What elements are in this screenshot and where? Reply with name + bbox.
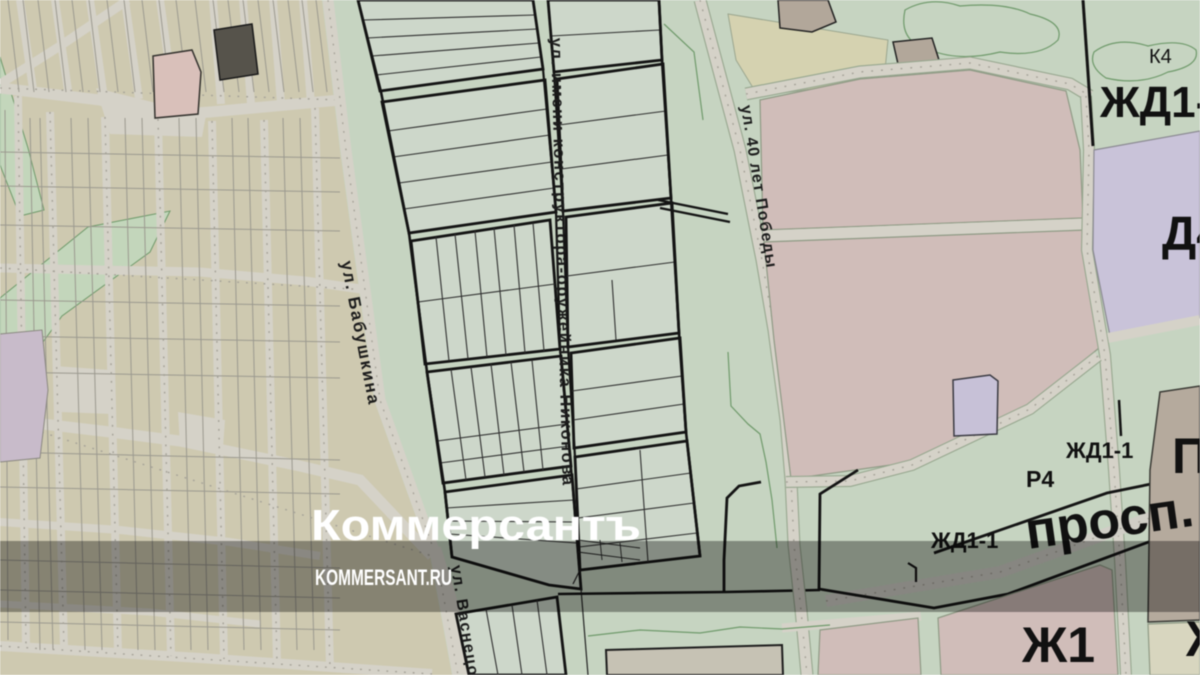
- svg-text:Ж: Ж: [1185, 611, 1200, 667]
- svg-text:Коммерсантъ: Коммерсантъ: [311, 501, 641, 550]
- svg-text:ЖД1-1: ЖД1-1: [1065, 438, 1133, 463]
- svg-text:К4: К4: [1149, 46, 1172, 68]
- svg-text:Р4: Р4: [1026, 466, 1054, 492]
- svg-text:Д4: Д4: [1162, 208, 1200, 261]
- svg-text:Ж1: Ж1: [1021, 617, 1095, 673]
- svg-text:П: П: [1172, 428, 1200, 484]
- svg-text:ЖД1-1: ЖД1-1: [1099, 78, 1200, 127]
- svg-text:KOMMERSANT.RU: KOMMERSANT.RU: [315, 565, 452, 590]
